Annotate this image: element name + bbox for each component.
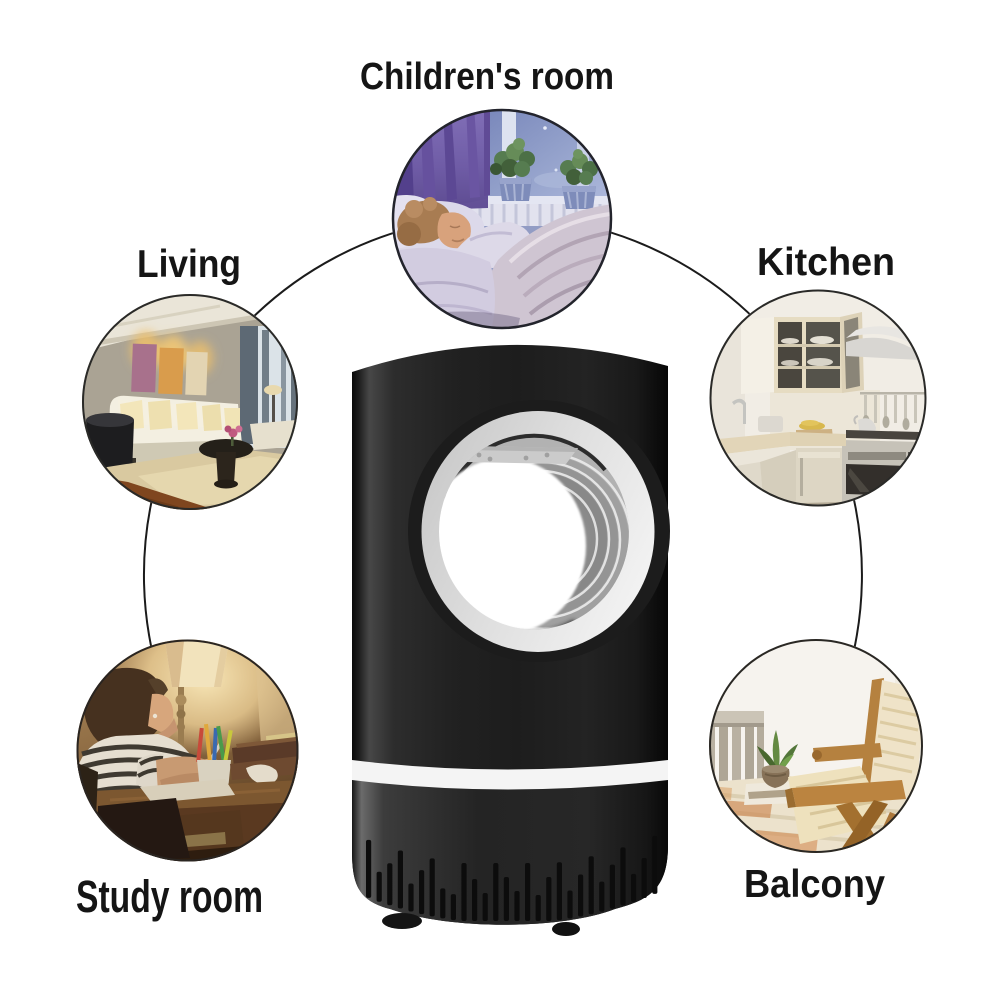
svg-text:Study room: Study room	[76, 871, 263, 922]
svg-text:Living: Living	[137, 243, 241, 286]
svg-text:Balcony: Balcony	[744, 863, 885, 906]
svg-text:Kitchen: Kitchen	[757, 241, 895, 284]
svg-text:Children's room: Children's room	[360, 56, 614, 98]
